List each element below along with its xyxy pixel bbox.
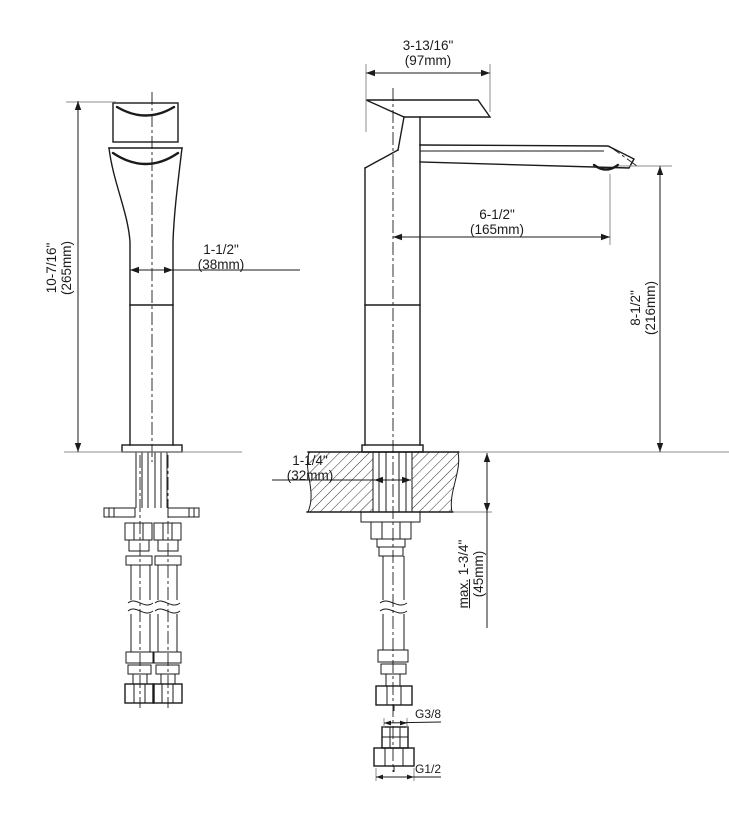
dim-body-width-mm: (38mm) — [166, 257, 276, 272]
dim-outlet-height-mm: (216mm) — [643, 248, 658, 368]
dim-mounting-hole-inches: 1-1/4" — [255, 453, 365, 468]
dim-body-width-inches: 1-1/2" — [166, 242, 276, 257]
dim-mounting-hole-mm: (32mm) — [255, 468, 365, 483]
dim-spout-reach-label: 6-1/2" (165mm) — [437, 207, 557, 237]
dim-spout-reach-inches: 6-1/2" — [437, 207, 557, 222]
dim-outlet-height-inches: 8-1/2" — [628, 248, 643, 368]
dim-deck-thickness-inches-line: max. 1-3/4" — [456, 504, 471, 644]
connection-upper-thread-label: G3/8 — [415, 708, 465, 721]
dim-deck-thickness-label: max. 1-3/4" (45mm) — [456, 504, 488, 644]
dim-deck-thickness-mm: (45mm) — [471, 504, 486, 644]
dim-body-width-label: 1-1/2" (38mm) — [166, 242, 276, 272]
dim-mounting-hole-label: 1-1/4" (32mm) — [255, 453, 365, 483]
side-shank-lines — [373, 452, 412, 512]
dim-total-height-label: 10-7/16" (265mm) — [44, 208, 76, 328]
dim-deck-thickness-prefix: max. — [456, 579, 471, 608]
front-shank-lines — [136, 452, 167, 508]
dim-handle-reach-mm: (97mm) — [366, 53, 490, 68]
dim-outlet-height-label: 8-1/2" (216mm) — [628, 248, 660, 368]
dimension-lines — [64, 64, 729, 781]
dim-total-height-inches: 10-7/16" — [44, 208, 59, 328]
technical-drawing: 3-13/16" (97mm) 10-7/16" (265mm) 1-1/2" … — [0, 0, 729, 819]
front-view — [104, 92, 199, 708]
connector-detail — [374, 727, 414, 772]
dim-spout-reach-mm: (165mm) — [437, 222, 557, 237]
dim-deck-thickness-inches: 1-3/4" — [456, 540, 471, 576]
side-hose — [380, 556, 407, 650]
drawing-linework — [0, 0, 729, 819]
dim-handle-reach-label: 3-13/16" (97mm) — [366, 38, 490, 68]
dim-total-height-mm: (265mm) — [59, 208, 74, 328]
connection-lower-thread-label: G1/2 — [415, 763, 465, 776]
side-view — [307, 88, 637, 772]
dim-handle-reach-inches: 3-13/16" — [366, 38, 490, 53]
front-hoses — [128, 565, 180, 652]
